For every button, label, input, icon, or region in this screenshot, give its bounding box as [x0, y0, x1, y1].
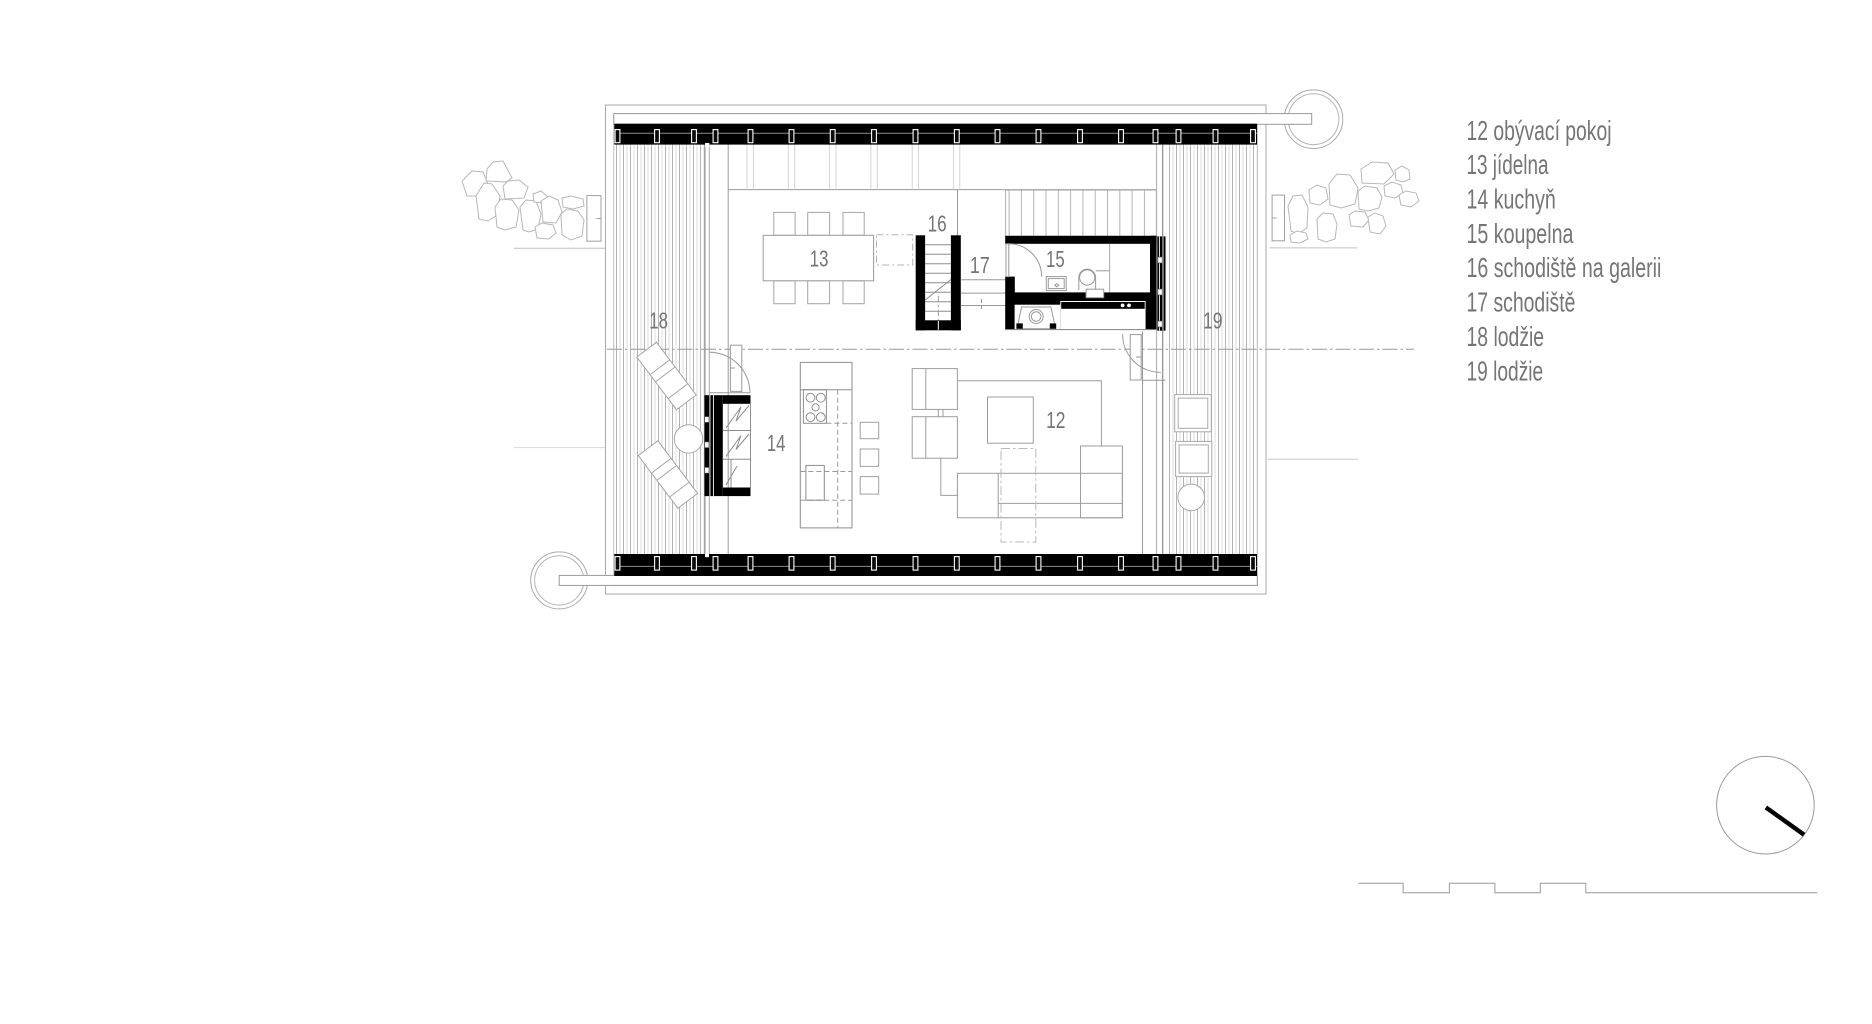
svg-text:13: 13 [810, 245, 829, 271]
svg-text:15: 15 [1046, 246, 1065, 272]
svg-text:15 koupelna: 15 koupelna [1467, 218, 1574, 249]
svg-text:14 kuchyň: 14 kuchyň [1467, 184, 1556, 215]
svg-text:17 schodiště: 17 schodiště [1467, 287, 1576, 318]
svg-text:19 lodžie: 19 lodžie [1467, 355, 1544, 386]
svg-text:16: 16 [928, 211, 947, 237]
svg-text:12: 12 [1046, 407, 1065, 433]
svg-text:14: 14 [767, 430, 786, 456]
svg-text:17: 17 [970, 252, 990, 278]
svg-text:18: 18 [649, 308, 668, 334]
svg-text:12 obývací pokoj: 12 obývací pokoj [1467, 115, 1612, 146]
svg-text:16 schodiště na galerii: 16 schodiště na galerii [1467, 252, 1662, 283]
svg-text:18 lodžie: 18 lodžie [1467, 321, 1545, 352]
svg-text:19: 19 [1203, 308, 1223, 334]
svg-text:13 jídelna: 13 jídelna [1467, 149, 1549, 180]
